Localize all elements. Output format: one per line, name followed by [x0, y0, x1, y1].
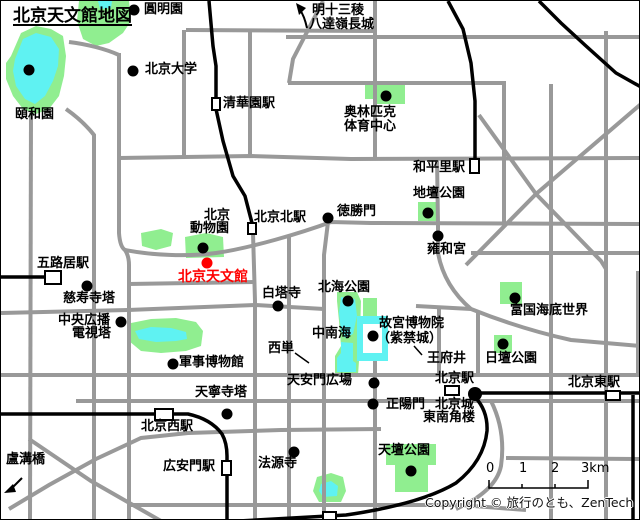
arrow-lugouqiao	[4, 478, 22, 493]
scale-tick-0: 0	[486, 462, 494, 476]
dot-tianningsi	[222, 409, 233, 420]
label-beijing-station: 北京駅	[435, 372, 474, 386]
park-taoranting	[313, 473, 346, 502]
dot-military-museum	[168, 359, 179, 370]
station-beijing	[445, 386, 459, 395]
station-hepingli	[470, 159, 479, 173]
dot-ritan	[498, 339, 509, 350]
dot-cishousi	[82, 281, 93, 292]
label-fayuansi: 法源寺	[258, 457, 297, 471]
dot-baitasi	[273, 301, 284, 312]
scale-bar	[489, 480, 588, 488]
pointer-wangfujing	[414, 346, 422, 355]
label-yonghegong: 雍和宮	[427, 243, 466, 257]
label-zoo-2: 動物園	[190, 222, 229, 236]
label-tiantan-park: 天壇公園	[378, 444, 430, 458]
dot-ditan	[423, 208, 434, 219]
label-olympic-2: 体育中心	[344, 120, 396, 134]
copyright-notice: Copyright © 旅行のとも、ZenTech	[425, 496, 633, 510]
label-guanganmen-station: 広安門駅	[163, 460, 215, 474]
label-beijingxi-station: 北京西駅	[141, 420, 193, 434]
dot-summer-palace	[24, 65, 35, 76]
label-ming-tombs: 明十三稜	[312, 4, 364, 18]
map-title: 北京天文館地図	[13, 9, 132, 26]
road-network	[1, 1, 640, 520]
station-south-minor	[323, 512, 336, 520]
label-zhengyangmen: 正陽門	[386, 398, 425, 412]
scale-tick-1: 1	[519, 462, 527, 476]
station-guanganmen	[222, 461, 231, 475]
dot-zoo	[198, 243, 209, 254]
station-qinghuayuan	[212, 98, 220, 110]
label-xidan: 西単	[268, 342, 294, 356]
label-planetarium: 北京天文館	[178, 270, 248, 284]
park-yuyuantan	[129, 318, 203, 353]
label-wangfujing: 王府井	[427, 352, 466, 366]
label-beijingdong-station: 北京東駅	[568, 376, 620, 390]
label-lugouqiao: 盧溝橋	[6, 453, 45, 467]
station-beijingdong	[606, 391, 620, 400]
label-military-museum: 軍事博物館	[179, 356, 244, 370]
dot-fuguo	[510, 293, 521, 304]
dot-yonghegong	[433, 231, 444, 242]
label-olympic-1: 奥林匹克	[344, 106, 396, 120]
label-gugong-2: （紫禁城）	[377, 332, 442, 346]
dot-tiantan	[406, 466, 417, 477]
railway-network	[1, 1, 640, 520]
label-deshengmen: 徳勝門	[337, 205, 376, 219]
label-tianningsi-pagoda: 天寧寺塔	[195, 386, 247, 400]
dot-olympic	[381, 91, 392, 102]
label-wuluju-station: 五路居駅	[37, 257, 89, 271]
label-yuanmingyuan: 圓明園	[144, 3, 183, 17]
dot-beijing-univ	[128, 66, 139, 77]
park-summer-palace	[6, 26, 66, 114]
map-canvas	[1, 1, 640, 520]
dot-tv-tower	[116, 317, 127, 328]
dot-tiananmen	[369, 378, 380, 389]
label-badaling: 八達嶺長城	[309, 18, 374, 32]
label-summer-palace: 頤和園	[15, 108, 54, 122]
park-jingshan	[363, 298, 377, 316]
pointer-xidan	[295, 353, 309, 363]
beijing-planetarium-map: 北京天文館地図 圓明園 北京大学 頤和園 明十三稜 八達嶺長城 清華園駅 奥林匹…	[0, 0, 640, 520]
dot-planetarium	[202, 258, 213, 269]
label-corner-tower-2: 東南角楼	[423, 411, 475, 425]
label-ditan-park: 地壇公園	[413, 187, 465, 201]
label-zhongnanhai: 中南海	[312, 327, 351, 341]
dot-beihai	[343, 296, 354, 307]
label-baitasi: 白塔寺	[262, 287, 301, 301]
scale-tick-3km: 3km	[581, 462, 609, 476]
label-fuguo: 富国海底世界	[510, 304, 588, 318]
dot-zhengyangmen	[368, 399, 379, 410]
label-ritan-park: 日壇公園	[485, 352, 537, 366]
label-beijing-univ: 北京大学	[145, 63, 197, 77]
label-tv-tower-2: 電視塔	[72, 327, 111, 341]
label-beijingbei-station: 北京北駅	[254, 211, 306, 225]
scale-tick-2: 2	[551, 462, 559, 476]
label-gugong-1: 故宮博物院	[379, 317, 444, 331]
label-cishousi-pagoda: 慈寿寺塔	[63, 292, 115, 306]
label-qinghuayuan-station: 清華園駅	[223, 97, 275, 111]
arrow-north-great-wall	[296, 3, 307, 28]
label-hepingli-station: 和平里駅	[413, 161, 465, 175]
label-tiananmen-square: 天安門広場	[287, 374, 352, 388]
park-zizhuyuan	[141, 229, 173, 250]
dot-deshengmen	[323, 213, 334, 224]
station-wuluju	[45, 271, 61, 284]
label-beihai-park: 北海公園	[318, 281, 370, 295]
